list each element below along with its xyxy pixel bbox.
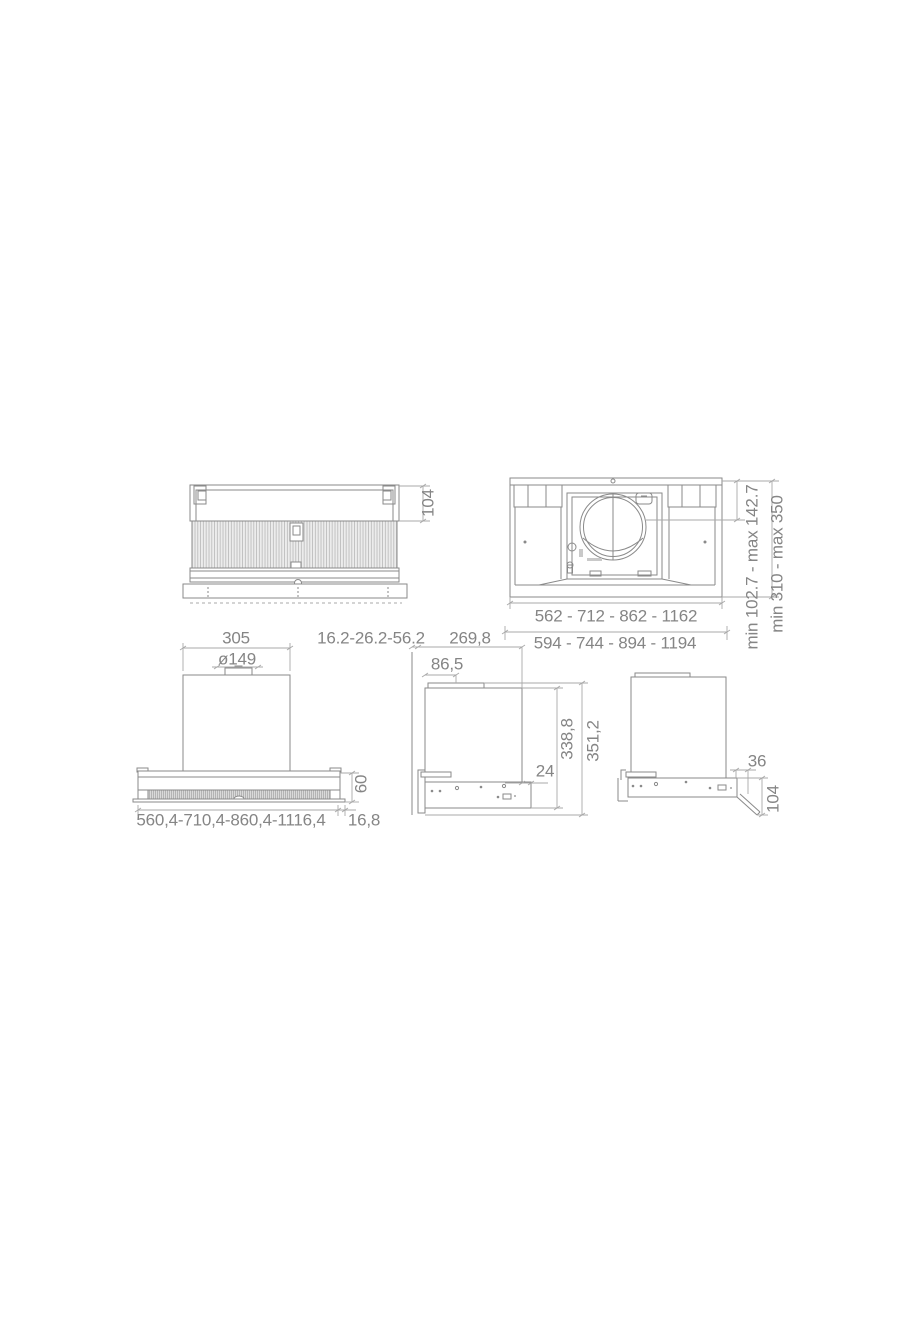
dim-front-visor-height: 60 bbox=[353, 775, 370, 794]
dim-flap-height: 104 bbox=[765, 785, 782, 813]
dim-side-depth: 269,8 bbox=[449, 630, 491, 647]
dim-side-rear-offset: 24 bbox=[536, 763, 555, 780]
dim-side-body-height: 338,8 bbox=[559, 718, 576, 760]
dim-front-chimney-width: 305 bbox=[222, 630, 250, 647]
dim-front-edge-offset: 16,8 bbox=[348, 812, 380, 829]
drawing-page: 104 562 - 712 - 862 - 1162 594 - 744 - 8… bbox=[0, 0, 912, 1320]
front-panel-view bbox=[180, 475, 445, 615]
dim-front-duct-diameter: ø149 bbox=[218, 651, 256, 668]
dim-front-panel-height: 104 bbox=[420, 489, 437, 517]
dim-side-total-height: 351,2 bbox=[585, 720, 602, 762]
dim-top-depth-range: min 310 - max 350 bbox=[769, 495, 786, 632]
dim-front-body-widths: 560,4-710,4-860,4-1116,4 bbox=[136, 812, 325, 829]
dim-side-wall-gap: 16.2-26.2-56.2 bbox=[317, 630, 425, 647]
dim-flap-offset: 36 bbox=[748, 753, 767, 770]
dim-top-duct-center: min 102.7 - max 142.7 bbox=[744, 485, 761, 650]
dim-top-inner-width: 562 - 712 - 862 - 1162 bbox=[535, 608, 698, 625]
dim-top-outer-width: 594 - 744 - 894 - 1194 bbox=[534, 635, 697, 652]
dim-side-collar-offset: 86,5 bbox=[431, 656, 463, 673]
front-view bbox=[125, 625, 415, 825]
